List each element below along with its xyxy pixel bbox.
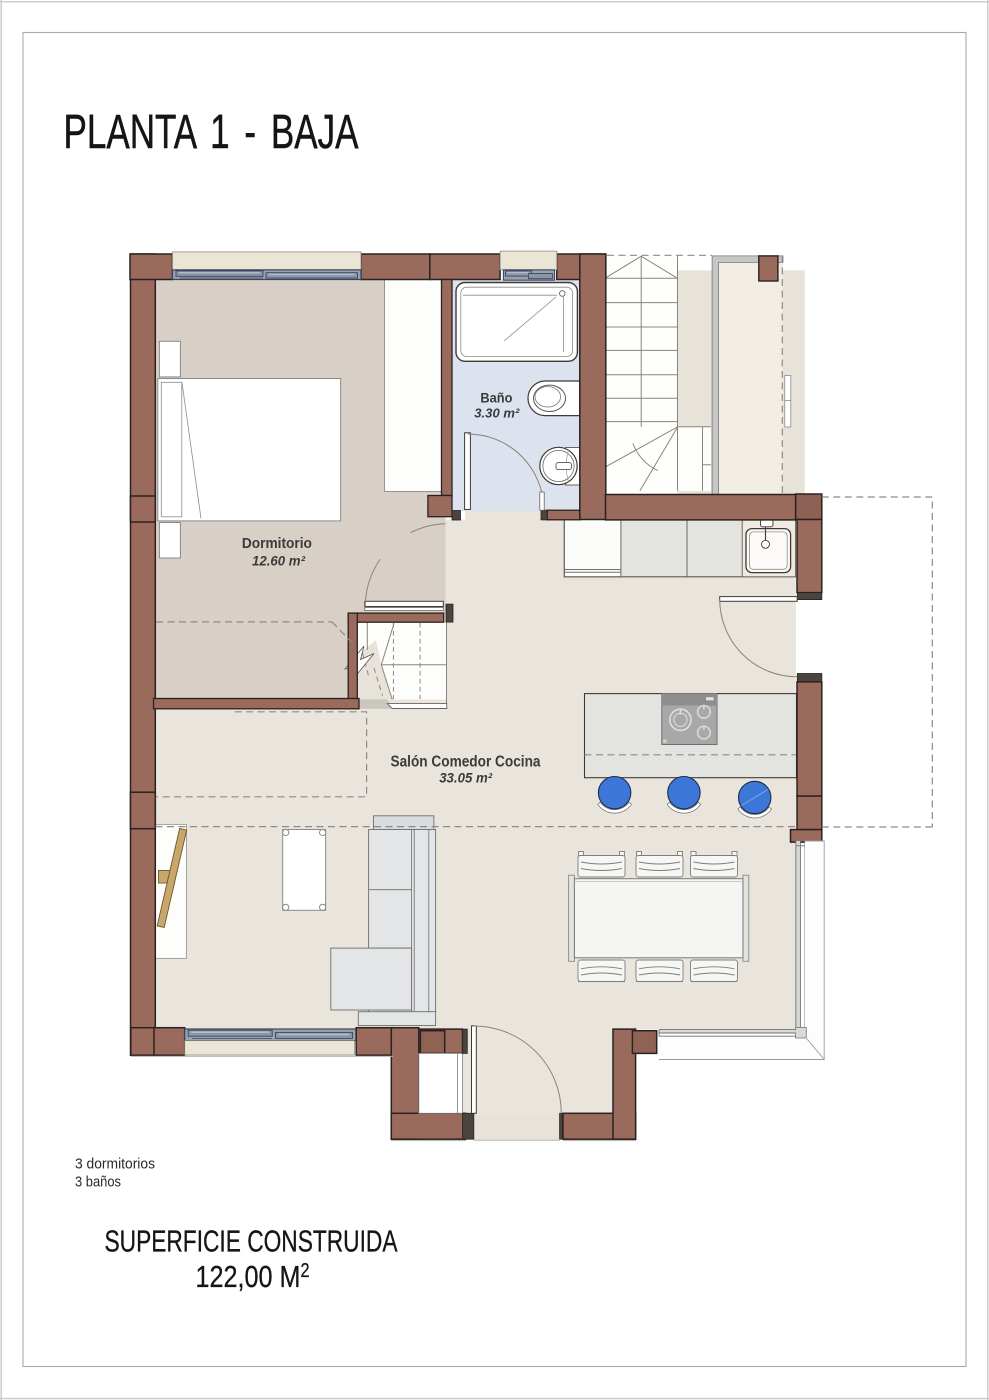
svg-text:33.05 m²: 33.05 m² (439, 771, 492, 786)
svg-text:3.30 m²: 3.30 m² (474, 406, 520, 421)
svg-text:12.60 m²: 12.60 m² (252, 554, 305, 569)
svg-text:Baño: Baño (480, 390, 512, 406)
svg-text:PLANTA 1 - BAJA: PLANTA 1 - BAJA (64, 106, 359, 159)
svg-text:Dormitorio: Dormitorio (242, 535, 312, 552)
svg-text:3 baños: 3 baños (75, 1175, 121, 1191)
svg-text:Salón Comedor Cocina: Salón Comedor Cocina (391, 754, 541, 771)
svg-text:SUPERFICIE CONSTRUIDA: SUPERFICIE CONSTRUIDA (105, 1224, 398, 1259)
svg-text:122,00 M2: 122,00 M2 (196, 1259, 310, 1294)
svg-text:3 dormitorios: 3 dormitorios (75, 1157, 155, 1173)
